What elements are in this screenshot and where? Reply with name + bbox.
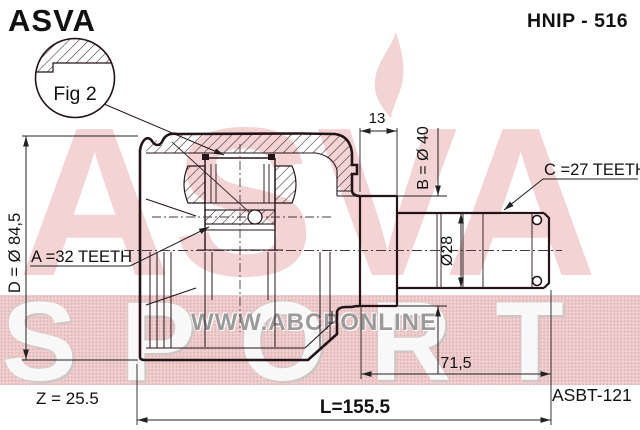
housing-section-hatch xyxy=(146,134,352,191)
shaft xyxy=(124,196,562,306)
dim-a-label: A =32 TEETH xyxy=(31,248,132,266)
catalog-drawing-page: ASVA SPORT WWW.ABCPONLINE ASVA HNIP - 51… xyxy=(0,0,640,430)
dim-71-label: 71,5 xyxy=(440,355,471,372)
right-roller xyxy=(275,166,296,203)
dim-d-label: D = Ø 84,5 xyxy=(6,213,24,293)
housing-outline xyxy=(140,134,360,361)
snap-ring-right xyxy=(268,154,275,160)
dim-shaft-dia-label: Ø28 xyxy=(439,236,456,266)
circlip-top xyxy=(533,216,542,225)
circlip-bottom xyxy=(533,277,542,286)
fig2-label: Fig 2 xyxy=(53,83,96,105)
brand-logo: ASVA xyxy=(8,3,96,38)
dim-13-label: 13 xyxy=(369,110,386,127)
bearing-assembly xyxy=(152,142,332,347)
dim-c-label: C =27 TEETH xyxy=(544,161,640,179)
reference-number: ASBT-121 xyxy=(552,385,632,405)
articulation-center-mark xyxy=(248,210,262,224)
dim-b-label: B = Ø 40 xyxy=(415,126,432,190)
dim-z-label: Z = 25.5 xyxy=(36,389,99,408)
snap-ring-left xyxy=(202,154,209,160)
cv-joint-technical-drawing: ASVA HNIP - 516 Fig 2 xyxy=(0,0,640,430)
part-number: HNIP - 516 xyxy=(527,10,628,32)
dim-l-label: L=155.5 xyxy=(320,397,391,418)
left-roller xyxy=(184,166,205,203)
